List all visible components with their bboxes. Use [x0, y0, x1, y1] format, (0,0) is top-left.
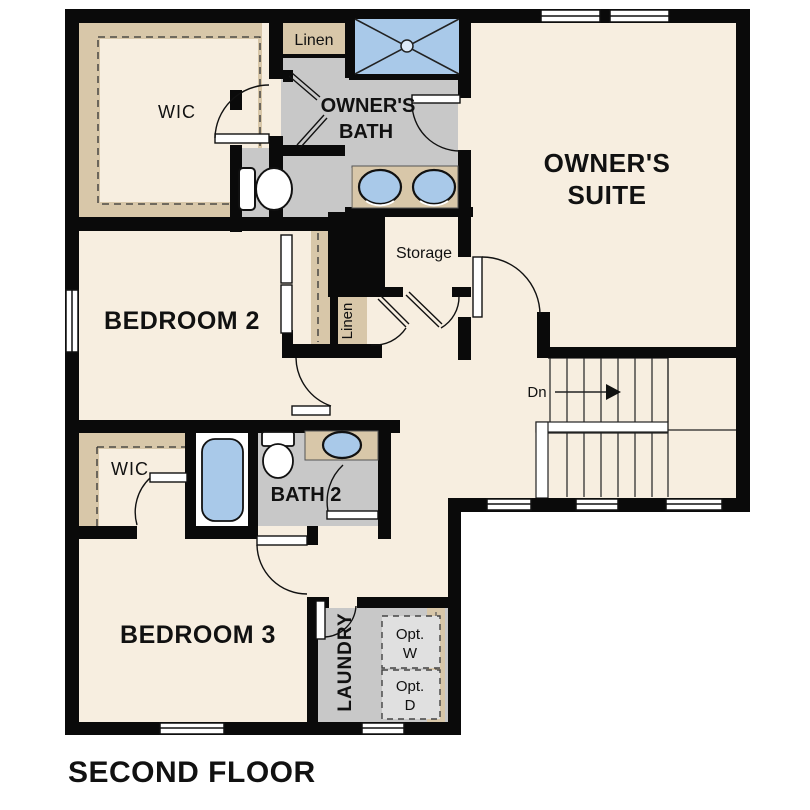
window-suite-2 [610, 10, 669, 22]
linen-top-label: Linen [294, 32, 333, 49]
owners-bath-label-2: BATH [339, 121, 393, 143]
laundry-label: LAUNDRY [335, 612, 356, 711]
toilet-owners-tank [239, 168, 255, 210]
wall-storage-stub-left [385, 287, 403, 297]
wall-tub-right [248, 433, 258, 527]
wall-storage-stub-right [452, 287, 471, 297]
window-stair-2 [576, 499, 618, 510]
wic-owners-label: WIC [158, 102, 196, 122]
wall-bedroom3-door-stub [307, 526, 318, 545]
owners-suite-label-1: OWNER'S [544, 148, 671, 178]
toilet-bath2 [262, 432, 294, 478]
wall-stair-top [537, 347, 750, 358]
wall-bedroom2-stub [282, 330, 293, 357]
wic-bedroom3-label: WIC [111, 459, 149, 479]
wall-laundry-top-b [357, 597, 448, 608]
bedroom2-closet-shelf [311, 231, 330, 344]
vanity-sink-right [413, 170, 455, 204]
window-stair-3 [666, 499, 722, 510]
wall-suite-left-c [458, 317, 471, 360]
toilet-owners [239, 168, 292, 210]
linen-hall-label: Linen [339, 303, 356, 340]
wall-wic1-right-upper [269, 9, 283, 79]
opt-dryer-label-2: D [405, 697, 416, 714]
floor-plan-page: Linen OWNER'S BATH WIC OWNER'S SUITE Sto… [0, 0, 810, 810]
plan-title: SECOND FLOOR [68, 756, 316, 789]
owners-suite-label-2: SUITE [567, 180, 646, 210]
wall-bottom-row-a [65, 526, 137, 539]
shower-drain [401, 40, 413, 52]
sink-bath2-basin [323, 432, 361, 458]
wall-step-vertical [448, 498, 461, 735]
wall-bath2-right [378, 433, 391, 521]
wall-wc-top [283, 145, 345, 156]
window-suite-1 [541, 10, 600, 22]
shower [352, 16, 462, 77]
wall-outer-right [736, 9, 750, 512]
toilet-bath2-bowl [263, 444, 293, 478]
vanity-owners [352, 166, 458, 208]
wall-closet-bottom [282, 344, 382, 358]
stair-stringer [536, 422, 548, 498]
window-bedroom3 [160, 723, 224, 734]
wall-linen-hall-left [330, 295, 338, 347]
wall-outer-left [65, 9, 79, 735]
wall-wic1-stub [283, 70, 293, 82]
stair-landing-divider [536, 422, 668, 432]
stairs-dn-label: Dn [527, 384, 546, 401]
bedroom2-label: BEDROOM 2 [104, 307, 260, 335]
wall-bottom-row-b [185, 526, 258, 539]
wall-suite-left-b [458, 150, 471, 257]
sink-bath2 [305, 431, 378, 460]
owners-bath-floor-2 [281, 148, 351, 210]
wall-core-mass [328, 212, 385, 297]
window-bedroom2 [66, 290, 78, 352]
window-stair-1 [487, 499, 531, 510]
bath2-label: BATH 2 [271, 484, 342, 506]
bathtub [202, 439, 243, 521]
opt-dryer-label-1: Opt. [396, 678, 424, 695]
wall-linen-top-bottom [283, 54, 345, 58]
owners-bath-label-1: OWNER'S [321, 95, 416, 117]
floor-plan-drawing: Linen OWNER'S BATH WIC OWNER'S SUITE Sto… [0, 0, 810, 810]
vanity-sink-left [359, 170, 401, 204]
opt-washer-label-1: Opt. [396, 626, 424, 643]
wall-stair-stub [537, 312, 550, 352]
bedroom3-label: BEDROOM 3 [120, 621, 276, 649]
toilet-owners-bowl [256, 168, 292, 210]
storage-label: Storage [396, 245, 452, 262]
opt-washer-label-2: W [403, 645, 418, 662]
window-laundry [362, 723, 404, 734]
wall-bath2-corner-stub [378, 517, 391, 539]
